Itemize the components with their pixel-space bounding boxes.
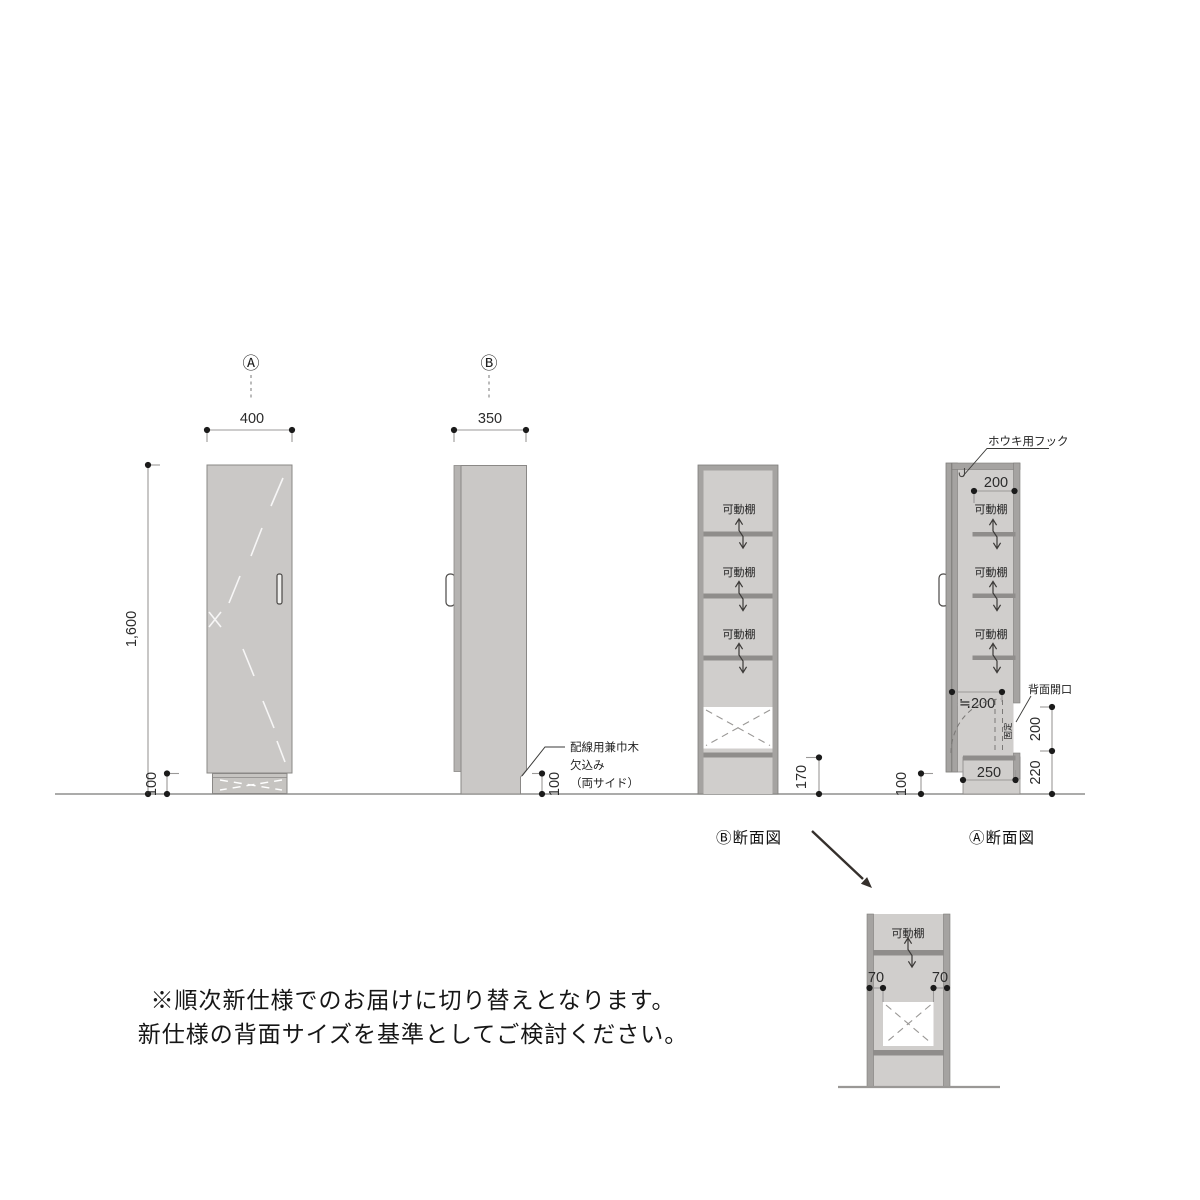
front-height-dimension: 1,600	[124, 462, 160, 797]
detail-left-offset-value: 70	[868, 970, 884, 986]
side-cabinet-body	[461, 466, 527, 795]
back-opening-area	[704, 707, 773, 749]
shelf-label: 可動棚	[723, 627, 756, 641]
dim-endpoint-dot	[999, 689, 1005, 695]
dim-endpoint-dot	[1049, 791, 1055, 797]
side-elevation-view: Ⓑ 350 配線用兼巾木 欠込み （両サイド） 100	[446, 354, 639, 797]
section-b-bottom-dimension: 170	[794, 754, 822, 797]
side-depth-dimension: 350	[451, 411, 529, 442]
fixed-label: 固定	[1003, 722, 1013, 740]
technical-drawing-page: Ⓐ 400 1,600	[0, 0, 1200, 1200]
fixed-shelf	[704, 753, 773, 758]
cabinet-dimension-drawing: Ⓐ 400 1,600	[0, 0, 1200, 1200]
fixed-shelf	[874, 1050, 944, 1056]
broom-hook-note: ホウキ用フック	[988, 435, 1069, 448]
dim-endpoint-dot	[523, 427, 529, 433]
opening-height-value: 200	[1028, 717, 1044, 741]
front-base-value: 100	[144, 772, 160, 796]
dim-endpoint-dot	[145, 462, 151, 468]
detail-right-offset-value: 70	[932, 970, 948, 986]
section-b-caption: Ⓑ断面図	[716, 829, 782, 847]
detail-back-opening-area	[883, 1002, 934, 1046]
section-a-door-panel	[946, 463, 952, 772]
detail-pointer-arrow	[812, 831, 872, 888]
front-base-dimension: 100	[144, 770, 179, 797]
notch-annotation: 配線用兼巾木 欠込み （両サイド）	[522, 740, 639, 790]
notch-note-line3: （両サイド）	[570, 777, 639, 790]
notch-note-line2: 欠込み	[570, 758, 605, 772]
dim-endpoint-dot	[164, 791, 170, 797]
section-a-caption: Ⓐ断面図	[969, 829, 1035, 847]
dim-endpoint-dot	[164, 770, 170, 776]
base-total-height-value: 220	[1028, 760, 1044, 784]
footnote-line1: ※順次新仕様でのお届けに切り替えとなります。	[150, 988, 675, 1013]
front-height-value: 1,600	[124, 611, 140, 647]
shelf-label: 可動棚	[723, 565, 756, 579]
base-depth-value: 250	[977, 765, 1001, 781]
front-width-dimension: 400	[204, 411, 295, 442]
dim-endpoint-dot	[539, 770, 545, 776]
dim-endpoint-dot	[1049, 748, 1055, 754]
side-notch-dimension: 100	[532, 770, 563, 797]
dim-endpoint-dot	[816, 754, 822, 760]
dim-endpoint-dot	[918, 770, 924, 776]
side-notch-value: 100	[547, 772, 563, 796]
section-a-right-dimensions: 200 220	[1028, 704, 1055, 797]
section-a-notch-value: 100	[894, 772, 910, 796]
footnote: ※順次新仕様でのお届けに切り替えとなります。 新仕様の背面サイズを基準としてご検…	[138, 988, 689, 1047]
back-opening-annotation: 背面開口	[1016, 682, 1072, 722]
dim-endpoint-dot	[539, 791, 545, 797]
shelf-label: 可動棚	[975, 565, 1008, 579]
door-handle	[277, 574, 282, 604]
section-b-view: 可動棚 可動棚 可動棚 170 Ⓑ断面図	[698, 465, 822, 847]
dim-endpoint-dot	[451, 427, 457, 433]
fixed-shelf	[963, 756, 1016, 761]
side-depth-value: 350	[478, 411, 502, 427]
detail-right-wall	[944, 914, 951, 1087]
door-clearance-value: ≒200	[959, 696, 995, 712]
dim-endpoint-dot	[1011, 488, 1017, 494]
shelf-label: 可動棚	[723, 502, 756, 516]
dim-endpoint-dot	[816, 791, 822, 797]
front-base	[213, 774, 288, 794]
movable-shelf	[704, 594, 773, 599]
shelf-depth-value: 200	[984, 475, 1008, 491]
front-width-value: 400	[240, 411, 264, 427]
section-marker-b: Ⓑ	[481, 354, 498, 373]
detail-left-wall	[867, 914, 874, 1087]
dim-endpoint-dot	[971, 488, 977, 494]
section-a-top-panel	[952, 463, 1020, 470]
dim-endpoint-dot	[1049, 704, 1055, 710]
movable-shelf	[704, 532, 773, 537]
section-a-notch-dimension: 100	[894, 770, 933, 797]
section-a-front-wall	[952, 463, 958, 772]
shelf-label: 可動棚	[975, 627, 1008, 641]
dim-endpoint-dot	[204, 427, 210, 433]
back-opening-note: 背面開口	[1028, 682, 1072, 696]
notch-note-line1: 配線用兼巾木	[570, 740, 639, 754]
dim-endpoint-dot	[949, 689, 955, 695]
dim-endpoint-dot	[289, 427, 295, 433]
dim-endpoint-dot	[918, 791, 924, 797]
section-a-view: ホウキ用フック 200 可動棚 可動棚 可動棚 ≒200	[894, 435, 1072, 847]
section-marker-a: Ⓐ	[243, 354, 260, 373]
movable-shelf	[704, 656, 773, 661]
back-opening-detail-view: 可動棚 70 70	[838, 914, 1000, 1087]
dim-endpoint-dot	[1012, 777, 1018, 783]
section-b-bottom-value: 170	[794, 765, 810, 789]
front-elevation-view: Ⓐ 400 1,600	[124, 354, 295, 797]
side-door-edge-panel	[454, 466, 461, 772]
section-a-back-panel-upper	[1014, 463, 1021, 703]
dim-endpoint-dot	[960, 777, 966, 783]
shelf-label: 可動棚	[975, 502, 1008, 516]
footnote-line2: 新仕様の背面サイズを基準としてご検討ください。	[138, 1022, 689, 1047]
front-door-panel	[207, 465, 292, 773]
